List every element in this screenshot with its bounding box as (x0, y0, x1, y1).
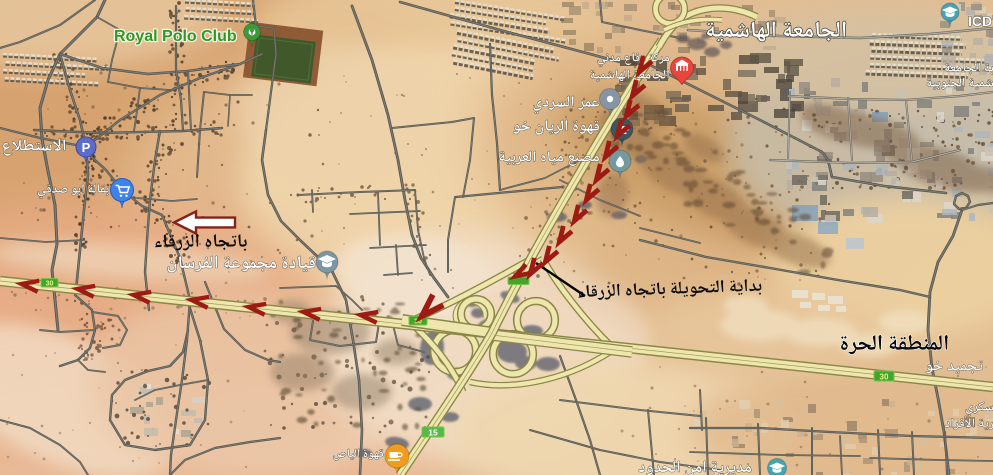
svg-text:Royal Polo Club: Royal Polo Club (114, 28, 237, 45)
svg-text:30: 30 (880, 372, 889, 381)
svg-text:30: 30 (46, 280, 54, 287)
svg-text:ICD: ICD (968, 13, 992, 29)
svg-text:15: 15 (428, 427, 438, 437)
svg-text:P: P (82, 140, 91, 155)
